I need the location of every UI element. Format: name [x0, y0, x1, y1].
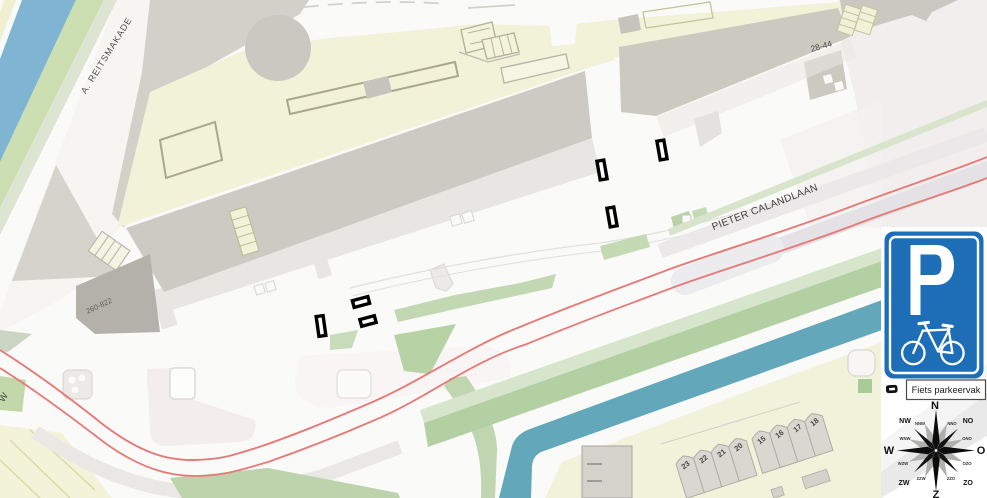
svg-text:NNW: NNW: [915, 421, 925, 426]
svg-text:NO: NO: [963, 418, 974, 425]
svg-text:OZO: OZO: [962, 461, 972, 466]
svg-text:ZZW: ZZW: [916, 476, 925, 481]
svg-text:ONO: ONO: [962, 436, 972, 441]
svg-text:Fiets parkeervak: Fiets parkeervak: [912, 385, 981, 395]
svg-text:N: N: [931, 400, 939, 412]
svg-text:NW: NW: [899, 418, 911, 425]
svg-text:WZW: WZW: [898, 461, 909, 466]
svg-text:W: W: [884, 445, 895, 457]
svg-text:Z: Z: [933, 489, 940, 498]
svg-text:WNW: WNW: [900, 436, 911, 441]
svg-text:ZW: ZW: [899, 480, 910, 487]
svg-text:ZZO: ZZO: [947, 476, 956, 481]
svg-text:O: O: [977, 445, 986, 457]
svg-text:NNO: NNO: [947, 421, 957, 426]
svg-text:ZO: ZO: [963, 480, 973, 487]
